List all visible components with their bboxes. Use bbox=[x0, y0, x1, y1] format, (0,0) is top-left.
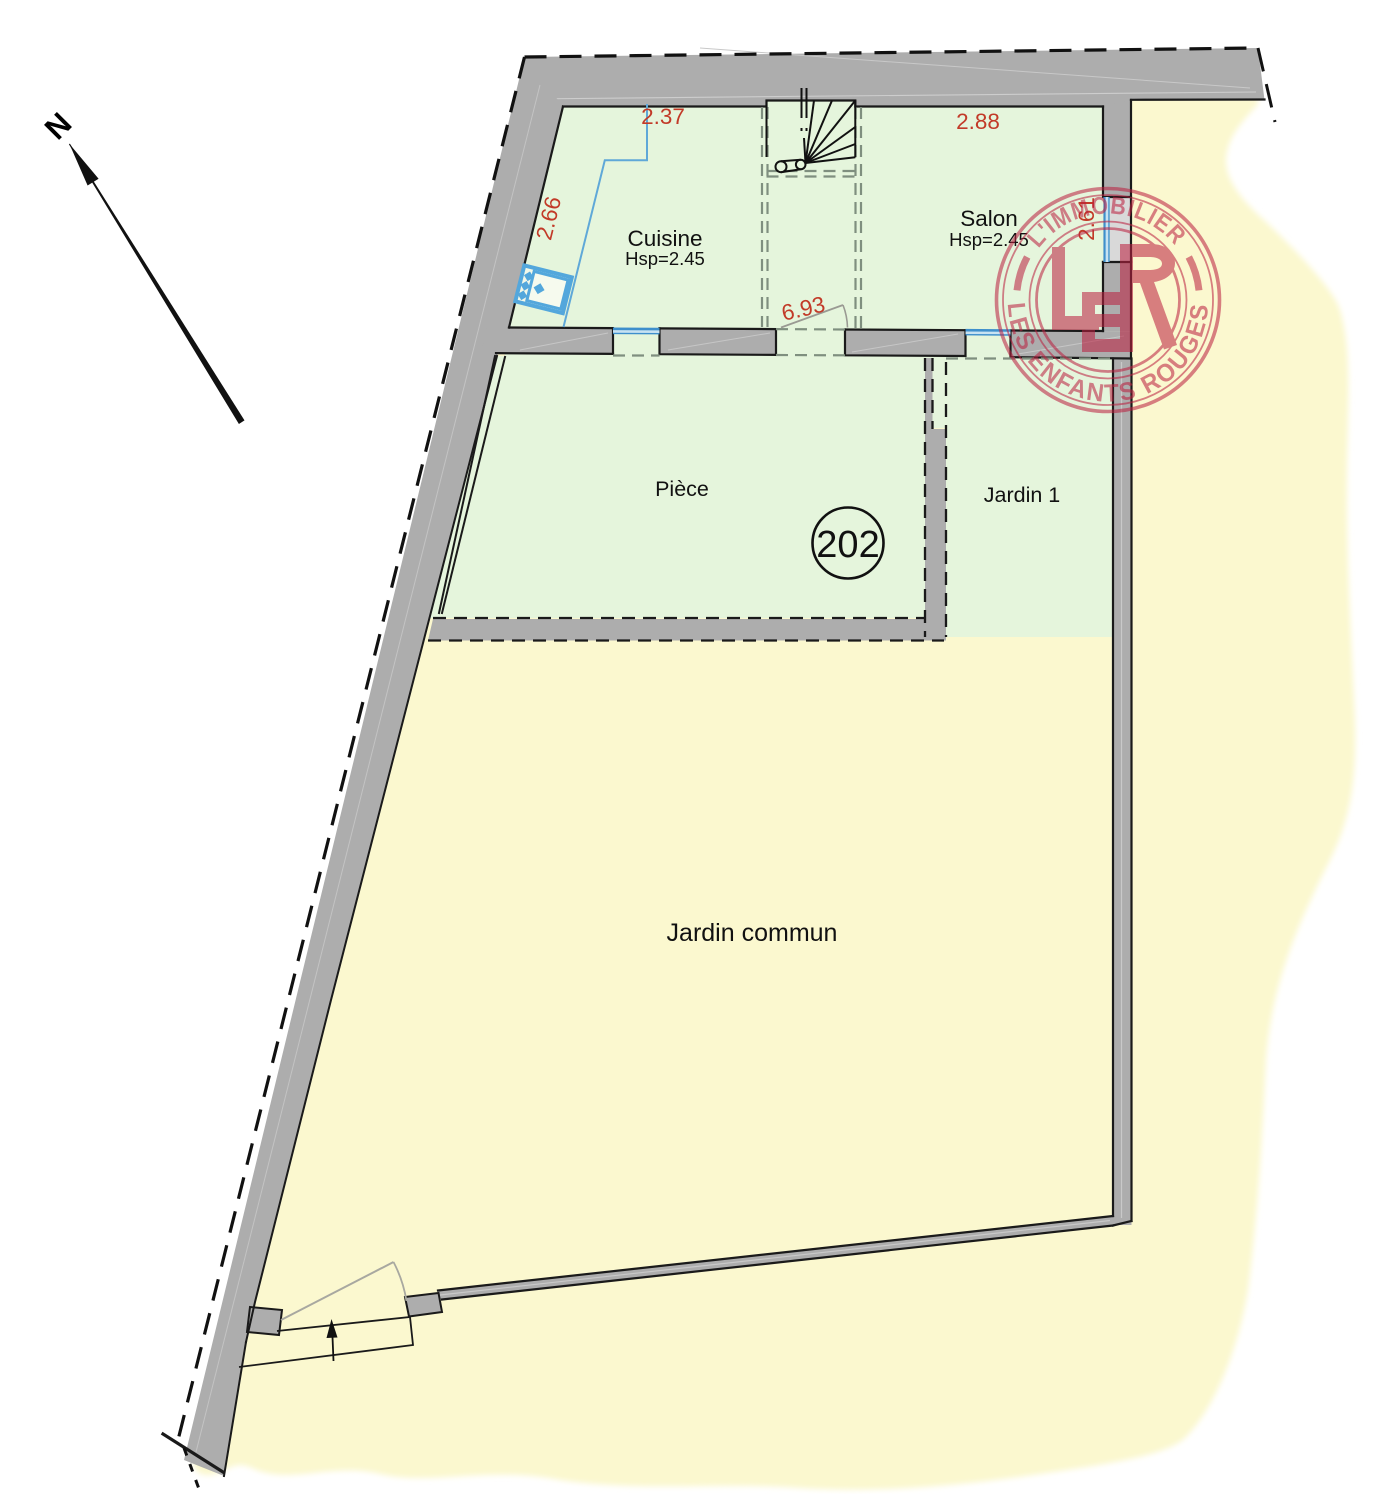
svg-text:Salon: Salon bbox=[960, 206, 1018, 231]
svg-text:Jardin commun: Jardin commun bbox=[667, 919, 838, 947]
svg-text:Jardin 1: Jardin 1 bbox=[984, 483, 1061, 507]
svg-text:Hsp=2.45: Hsp=2.45 bbox=[625, 248, 705, 269]
svg-text:Pièce: Pièce bbox=[655, 477, 709, 501]
svg-text:202: 202 bbox=[816, 524, 879, 566]
svg-text:2.88: 2.88 bbox=[956, 109, 1000, 134]
svg-text:2.37: 2.37 bbox=[641, 104, 685, 129]
